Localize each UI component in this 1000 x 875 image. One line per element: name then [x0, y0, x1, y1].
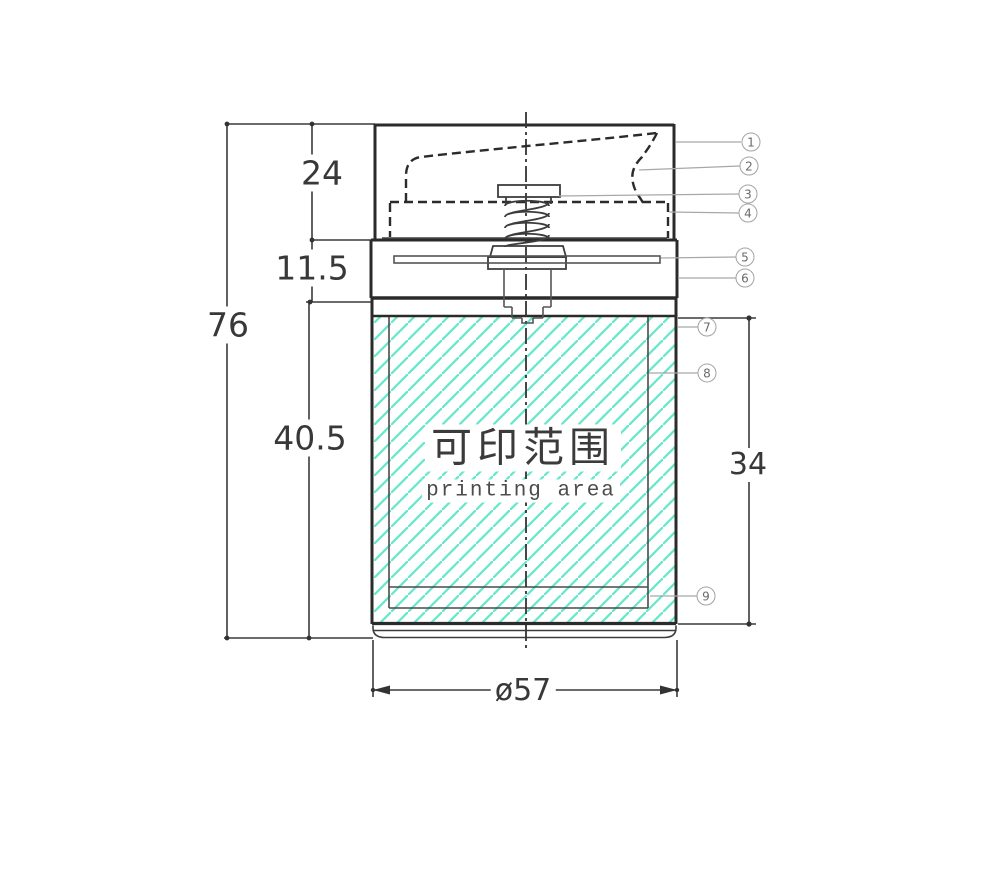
dim-label-body-height: 40.5 [269, 420, 350, 457]
technical-drawing-canvas: 24 11.5 76 40.5 34 ø57 可印范围 printing are… [0, 0, 1000, 875]
callout-2: 2 [740, 157, 759, 176]
callout-3: 3 [739, 185, 758, 204]
base-rim [373, 626, 676, 638]
callout-4: 4 [739, 204, 758, 223]
dim-label-pump-section-height: 11.5 [271, 250, 352, 287]
dim-label-cap-height: 24 [297, 155, 347, 192]
callout-8: 8 [698, 364, 717, 383]
printing-area-title-cn: 可印范围 [425, 425, 621, 472]
printing-area-title-en: printing area [422, 480, 620, 503]
plate-and-stem [394, 256, 660, 323]
callout-5: 5 [736, 248, 755, 267]
callout-1: 1 [742, 133, 761, 152]
callout-7: 7 [698, 318, 717, 337]
dim-label-diameter: ø57 [491, 674, 556, 708]
callout-9: 9 [697, 587, 716, 606]
dim-label-print-height: 34 [725, 448, 771, 482]
dim-label-overall-height: 76 [203, 307, 253, 344]
callout-6: 6 [736, 269, 755, 288]
